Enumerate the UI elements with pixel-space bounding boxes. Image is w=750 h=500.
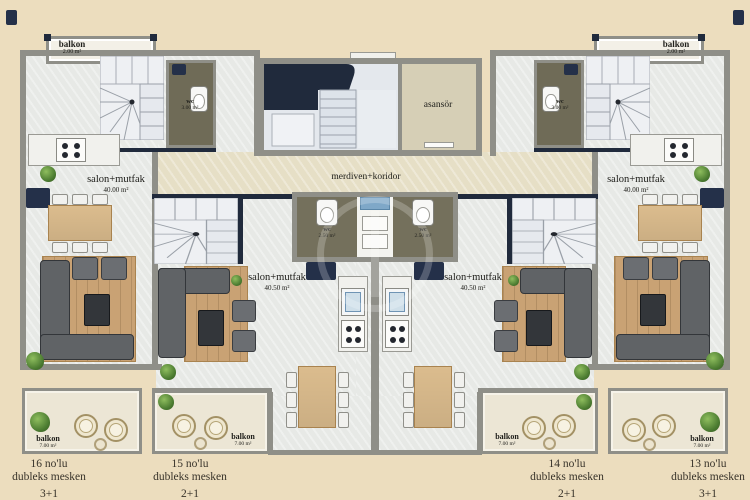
unit-type: dubleks mesken [643, 472, 750, 484]
stove-icon [385, 320, 409, 348]
sofa [158, 268, 186, 358]
fridge [700, 188, 724, 208]
coffee-table [84, 294, 110, 326]
unit14-balcony-label: balkon7.00 m² [484, 432, 530, 448]
coffee-table [640, 294, 666, 326]
dining-chair [682, 242, 698, 253]
dining-chair [454, 372, 465, 388]
dining-chair [403, 372, 414, 388]
dining-chair [72, 242, 88, 253]
unit15-stairs [154, 198, 238, 264]
plant-icon [700, 412, 720, 432]
dining-chair [682, 194, 698, 205]
unit14-caption: 14 no'lu dubleks mesken 2+1 Net :50.00 m… [502, 459, 632, 500]
unit-number: 16 no'lu [0, 459, 114, 471]
wall [490, 50, 496, 156]
armchair [652, 257, 678, 280]
rattan-chair [652, 414, 676, 438]
unit13-wc-label: wc3.00 m² [538, 98, 582, 112]
plant-icon [158, 394, 174, 410]
unit-rooms: 3+1 [643, 489, 750, 500]
armchair [232, 330, 256, 352]
rattan-chair [104, 418, 128, 442]
dining-chair [92, 242, 108, 253]
sofa [564, 268, 592, 358]
stove-icon [664, 138, 694, 162]
unit-rooms: 2+1 [125, 489, 255, 500]
plant-icon [706, 352, 724, 370]
dining-chair [286, 412, 297, 428]
armchair [494, 330, 518, 352]
plant-icon [160, 364, 176, 380]
ac-unit [733, 10, 744, 25]
unit15-balcony-label: balkon7.00 m² [220, 432, 266, 448]
rattan-chair [172, 414, 196, 438]
side-table [643, 438, 656, 451]
plant-icon [26, 352, 44, 370]
armchair [232, 300, 256, 322]
coffee-table [198, 310, 224, 346]
dining-table [414, 366, 452, 428]
dining-chair [642, 194, 658, 205]
armchair [101, 257, 127, 280]
corridor-label: merdiven+koridor [296, 172, 436, 182]
plant-icon [40, 166, 56, 182]
unit13-balcony-label: balkon7.00 m² [678, 434, 726, 450]
coffee-table [526, 310, 552, 346]
armchair [494, 300, 518, 322]
armchair [72, 257, 98, 280]
main-staircase [264, 64, 398, 150]
fridge [26, 188, 50, 208]
dining-chair [662, 194, 678, 205]
dining-chair [338, 412, 349, 428]
rattan-chair [552, 414, 576, 438]
unit-rooms: 3+1 [0, 489, 114, 500]
unit13-stairs [586, 56, 650, 140]
unit14-salon-label: salon+mutfak40.50 m² [423, 272, 523, 292]
unit-type: dubleks mesken [0, 472, 114, 484]
dining-chair [642, 242, 658, 253]
stove-icon [341, 320, 365, 348]
unit13-salon-label: salon+mutfak40.00 m² [586, 174, 686, 194]
watermark-logo [317, 196, 433, 312]
dining-table [48, 205, 112, 241]
dining-chair [454, 392, 465, 408]
dining-chair [286, 392, 297, 408]
dining-chair [403, 412, 414, 428]
wall [20, 50, 26, 370]
dining-chair [338, 372, 349, 388]
balcony-post [150, 34, 157, 41]
dining-chair [338, 392, 349, 408]
balcony-post [592, 34, 599, 41]
side-table [543, 437, 556, 450]
ac-unit [6, 10, 17, 25]
dining-table [638, 205, 702, 241]
unit13-caption: 13 no'lu dubleks mesken 3+1 Net :50.00 m… [643, 459, 750, 500]
plant-icon [576, 394, 592, 410]
rattan-chair [622, 418, 646, 442]
dining-chair [662, 242, 678, 253]
elevator-door [424, 142, 454, 148]
unit16-stairs [100, 56, 164, 140]
dining-chair [403, 392, 414, 408]
elevator-label: asansör [402, 100, 474, 111]
unit16-caption: 16 no'lu dubleks mesken 3+1 Net :50.00 m… [0, 459, 114, 500]
side-table [194, 437, 207, 450]
dining-chair [52, 194, 68, 205]
washbasin [172, 64, 186, 75]
dining-chair [92, 194, 108, 205]
unit-number: 14 no'lu [502, 459, 632, 471]
unit15-caption: 15 no'lu dubleks mesken 2+1 Net :50.00 m… [125, 459, 255, 500]
unit-type: dubleks mesken [502, 472, 632, 484]
plant-icon [30, 412, 50, 432]
unit13-top-balcony-label: balkon2.00 m² [654, 39, 698, 56]
floor-plan-canvas: asansör merdiven+koridor wc2.50 m² wc2.5… [0, 0, 750, 500]
dining-chair [72, 194, 88, 205]
dining-chair [52, 242, 68, 253]
unit-number: 13 no'lu [643, 459, 750, 471]
dining-table [298, 366, 336, 428]
wall [724, 50, 730, 370]
unit-number: 15 no'lu [125, 459, 255, 471]
washbasin [564, 64, 578, 75]
rattan-chair [74, 414, 98, 438]
unit16-wc-label: wc3.00 m² [168, 98, 212, 112]
stove-icon [56, 138, 86, 162]
wall [268, 450, 482, 455]
wall [238, 198, 243, 264]
unit16-top-balcony-label: balkon2.00 m² [50, 39, 94, 56]
armchair [623, 257, 649, 280]
unit14-stairs [512, 198, 596, 264]
balcony-post [698, 34, 705, 41]
sofa [616, 334, 710, 360]
unit16-balcony-label: balkon7.00 m² [24, 434, 72, 450]
side-table [94, 438, 107, 451]
dining-chair [454, 412, 465, 428]
unit-rooms: 2+1 [502, 489, 632, 500]
unit-type: dubleks mesken [125, 472, 255, 484]
plant-icon [574, 364, 590, 380]
sofa [40, 334, 134, 360]
dining-chair [286, 372, 297, 388]
unit16-salon-label: salon+mutfak40.00 m² [66, 174, 166, 194]
plant-icon [694, 166, 710, 182]
unit15-salon-label: salon+mutfak40.50 m² [227, 272, 327, 292]
